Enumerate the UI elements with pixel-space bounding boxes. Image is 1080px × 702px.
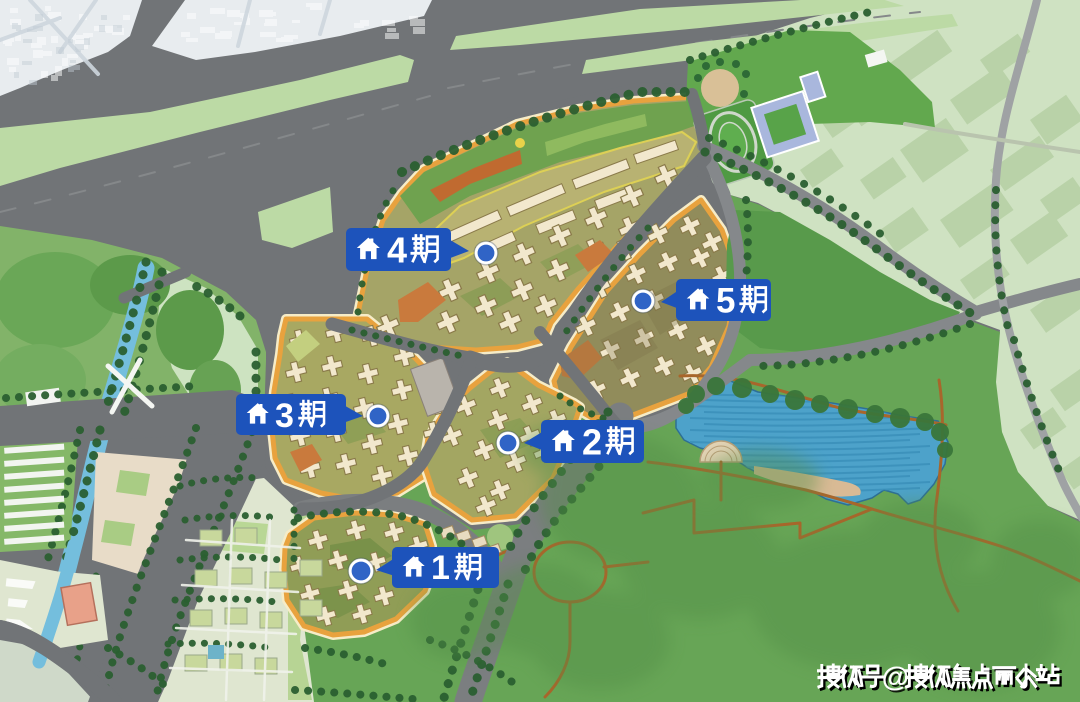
svg-text:1: 1 (431, 549, 450, 587)
svg-text:5: 5 (716, 282, 735, 321)
svg-text:2: 2 (582, 422, 602, 463)
svg-text:@: @ (882, 661, 909, 692)
svg-text:4: 4 (387, 230, 407, 271)
svg-text:3: 3 (275, 397, 294, 435)
